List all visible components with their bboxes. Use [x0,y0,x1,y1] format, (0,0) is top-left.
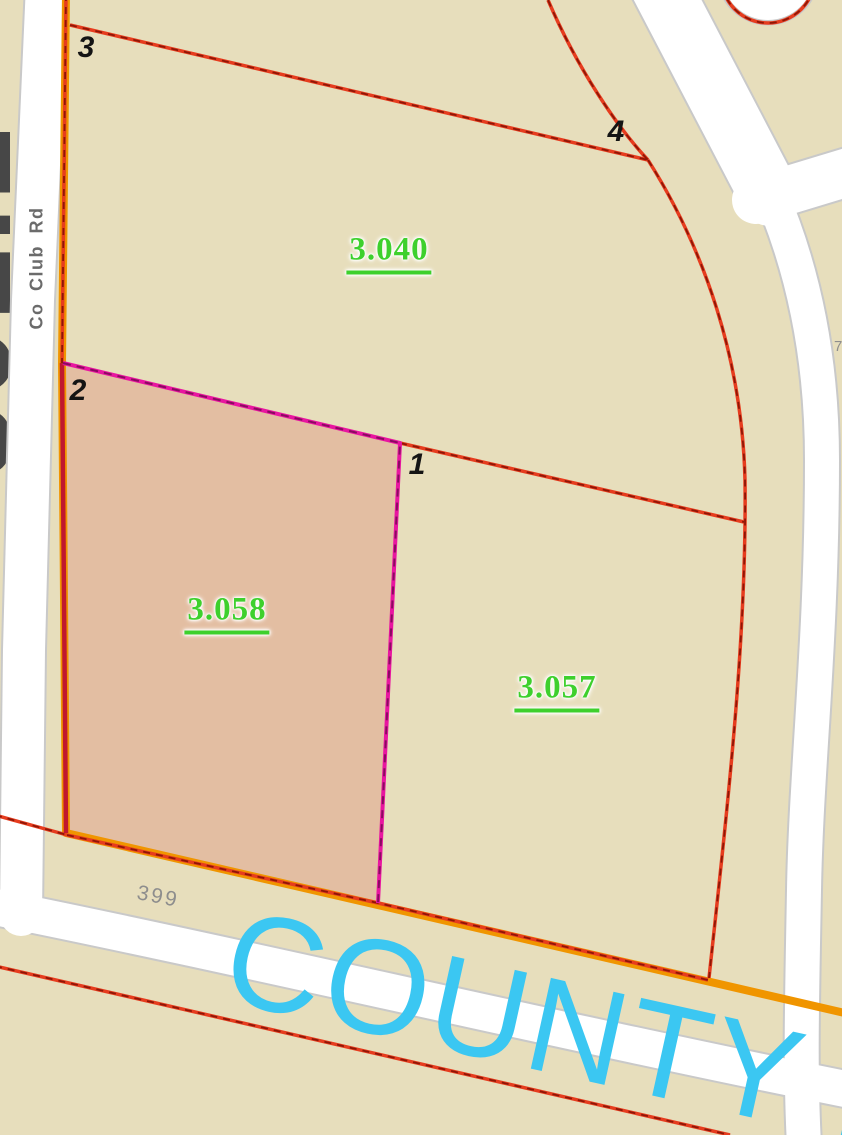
parcel-map-canvas[interactable]: 301.1 [0,0,842,1135]
corner-marker-1: 1 [409,448,426,482]
corner-marker-4: 4 [608,115,625,149]
parcel-label-3057[interactable]: 3.057 [514,670,599,713]
road-northeast [652,0,770,196]
road-label-co-club-rd: Co Club Rd [27,207,48,330]
parcel-label-3040[interactable]: 3.040 [346,232,431,275]
road-co-club [21,0,47,915]
parcel-label-3058-selected[interactable]: 3.058 [184,592,269,635]
right-edge-text-fragment: 7 [834,338,842,355]
corner-marker-2: 2 [70,374,87,408]
corner-marker-3: 3 [78,31,95,65]
